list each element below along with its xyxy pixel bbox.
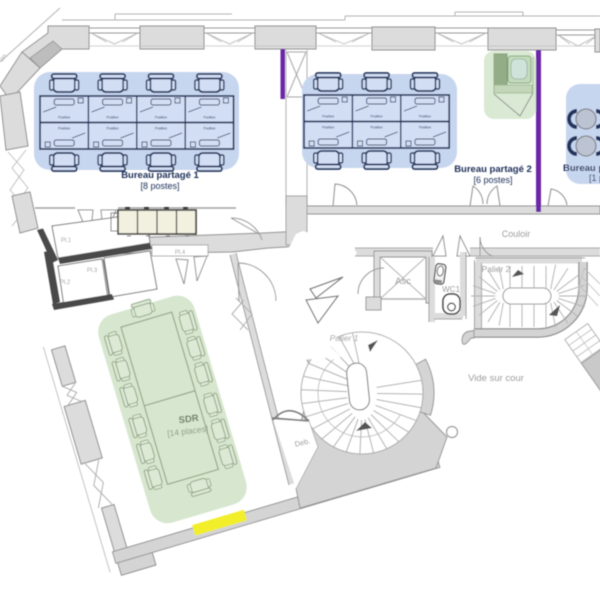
svg-text:Position: Position <box>371 115 383 119</box>
svg-text:Pl.2: Pl.2 <box>60 280 71 286</box>
svg-text:Pl.4: Pl.4 <box>175 250 186 256</box>
svg-text:Asc: Asc <box>395 276 411 287</box>
svg-text:Position: Position <box>419 126 431 130</box>
svg-text:Couloir: Couloir <box>502 229 531 239</box>
svg-text:Position: Position <box>371 126 383 130</box>
svg-text:Position: Position <box>155 127 167 131</box>
svg-text:[1 poste]: [1 poste] <box>589 173 600 183</box>
svg-text:Pl.1: Pl.1 <box>61 238 72 244</box>
svg-text:Position: Position <box>203 116 215 120</box>
svg-text:Palier 1: Palier 1 <box>330 333 359 343</box>
svg-text:Position: Position <box>58 116 70 120</box>
svg-text:Position: Position <box>107 127 119 131</box>
svg-text:Position: Position <box>203 127 215 131</box>
svg-text:Position: Position <box>58 127 70 131</box>
svg-text:Bureau partagé 2: Bureau partagé 2 <box>454 164 532 175</box>
svg-text:Vide sur cour: Vide sur cour <box>468 373 524 384</box>
svg-text:Position: Position <box>107 116 119 120</box>
svg-text:[8 postes]: [8 postes] <box>140 181 179 191</box>
svg-text:Position: Position <box>322 126 334 130</box>
svg-text:Position: Position <box>155 116 167 120</box>
svg-text:Position: Position <box>419 115 431 119</box>
svg-text:Palier 2: Palier 2 <box>482 264 511 274</box>
svg-text:[6 postes]: [6 postes] <box>473 175 512 185</box>
svg-text:Position: Position <box>322 115 334 119</box>
svg-text:Pl.3: Pl.3 <box>87 268 98 274</box>
svg-text:WC1: WC1 <box>442 285 460 294</box>
svg-text:Bureau partagé 1: Bureau partagé 1 <box>121 170 199 181</box>
